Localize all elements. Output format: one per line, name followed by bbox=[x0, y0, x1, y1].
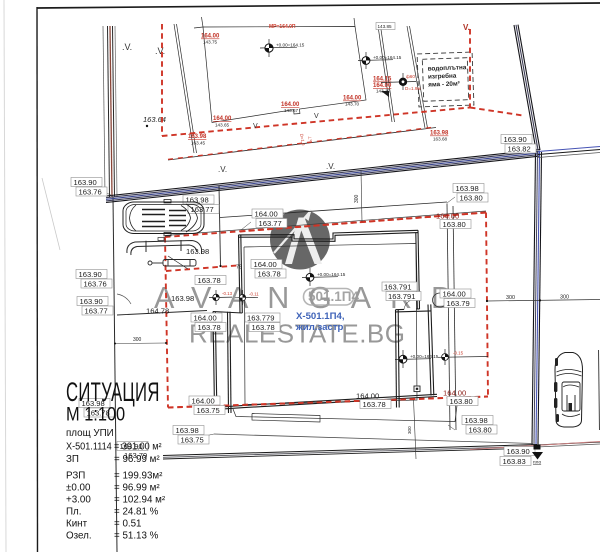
svg-text:163.75: 163.75 bbox=[197, 406, 220, 415]
svg-text:163.78: 163.78 bbox=[252, 323, 275, 332]
svg-text:164.00: 164.00 bbox=[213, 116, 232, 122]
svg-text:300: 300 bbox=[407, 426, 412, 434]
svg-text:.V.: .V. bbox=[218, 165, 227, 174]
svg-text:163.90: 163.90 bbox=[79, 270, 102, 279]
svg-text:163.80: 163.80 bbox=[469, 425, 492, 434]
svg-text:143.70: 143.70 bbox=[345, 102, 359, 107]
svg-text:Кинт: Кинт bbox=[66, 519, 88, 530]
svg-text:163.98: 163.98 bbox=[456, 184, 479, 193]
svg-text:164.78: 164.78 bbox=[146, 307, 169, 316]
svg-text:.V.: .V. bbox=[326, 162, 335, 171]
svg-text:163.83: 163.83 bbox=[503, 457, 526, 466]
svg-text:-0.13: -0.13 bbox=[222, 291, 233, 296]
svg-text:+0.00=164.15: +0.00=164.15 bbox=[317, 272, 346, 277]
svg-text:яма - 20м³: яма - 20м³ bbox=[428, 80, 460, 88]
svg-text:пло: пло bbox=[533, 461, 541, 466]
svg-text:163.90: 163.90 bbox=[504, 135, 527, 144]
svg-text:= 391.00 м²: = 391.00 м² bbox=[114, 441, 162, 452]
svg-text:водоплътна: водоплътна bbox=[428, 64, 467, 72]
svg-text:-0.11: -0.11 bbox=[249, 292, 259, 297]
svg-text:= 51.13 %: = 51.13 % bbox=[114, 531, 159, 542]
svg-text:МР=164.0П: МР=164.0П bbox=[269, 24, 296, 30]
svg-text:163.78: 163.78 bbox=[198, 323, 221, 332]
svg-text:163.80: 163.80 bbox=[460, 193, 483, 202]
svg-text:300: 300 bbox=[506, 295, 515, 301]
svg-text:ф60: ф60 bbox=[406, 74, 415, 79]
svg-text:= 0.51: = 0.51 bbox=[114, 519, 142, 530]
svg-text:X-501.1114: X-501.1114 bbox=[66, 441, 112, 452]
svg-text:164.00: 164.00 bbox=[443, 289, 466, 298]
svg-text:163.98: 163.98 bbox=[186, 247, 209, 256]
svg-text:164.00: 164.00 bbox=[192, 396, 215, 405]
svg-text:163.78: 163.78 bbox=[198, 276, 221, 285]
svg-text:164.00: 164.00 bbox=[255, 209, 278, 218]
svg-text:= 102.94 м²: = 102.94 м² bbox=[114, 495, 166, 506]
svg-text:163.76: 163.76 bbox=[79, 187, 102, 196]
svg-text:163.82: 163.82 bbox=[508, 144, 531, 153]
svg-text:164.15: 164.15 bbox=[373, 77, 392, 83]
svg-text:изгребна: изгребна bbox=[428, 72, 457, 81]
svg-text:Озел.: Озел. bbox=[66, 531, 92, 542]
svg-text:163.98: 163.98 bbox=[171, 294, 194, 303]
svg-text:300: 300 bbox=[560, 295, 569, 301]
svg-text:РЗП: РЗП bbox=[66, 471, 85, 482]
svg-text:163.80: 163.80 bbox=[450, 397, 473, 406]
svg-text:163.779: 163.779 bbox=[247, 313, 274, 322]
svg-text:.V.: .V. bbox=[155, 46, 165, 56]
svg-text:163.90: 163.90 bbox=[507, 447, 530, 456]
svg-text:143.75: 143.75 bbox=[203, 40, 217, 45]
svg-text:143.85: 143.85 bbox=[378, 24, 392, 29]
svg-text:163.75: 163.75 bbox=[181, 435, 204, 444]
svg-text:163.791: 163.791 bbox=[384, 282, 411, 291]
svg-text:163.45: 163.45 bbox=[191, 141, 205, 146]
svg-text:163.77: 163.77 bbox=[259, 219, 282, 228]
svg-text:V.: V. bbox=[463, 23, 470, 32]
svg-text:501.1П4: 501.1П4 bbox=[308, 289, 359, 304]
svg-text:164.00: 164.00 bbox=[194, 313, 217, 322]
svg-text:300: 300 bbox=[133, 337, 142, 343]
svg-text:= 199.93м²: = 199.93м² bbox=[114, 471, 163, 482]
svg-text:М 1:100: М 1:100 bbox=[66, 403, 125, 425]
svg-text:X-501.1П4,: X-501.1П4, bbox=[296, 311, 345, 322]
svg-text:163.791: 163.791 bbox=[388, 292, 415, 301]
svg-text:= 24.81 %: = 24.81 % bbox=[114, 507, 159, 518]
svg-text:D=1.9м: D=1.9м bbox=[405, 86, 421, 91]
svg-text:163.79: 163.79 bbox=[447, 299, 470, 308]
svg-text:V: V bbox=[314, 113, 319, 120]
svg-text:163.90: 163.90 bbox=[80, 297, 103, 306]
svg-text:жил.застр: жил.застр bbox=[295, 322, 343, 333]
svg-text:±0.00: ±0.00 bbox=[66, 483, 91, 494]
svg-text:143.65: 143.65 bbox=[215, 123, 229, 128]
svg-text:+0.00=164.15: +0.00=164.15 bbox=[276, 43, 305, 48]
svg-text:163.90: 163.90 bbox=[74, 178, 97, 187]
svg-text:= 96.99 м²: = 96.99 м² bbox=[114, 454, 160, 465]
svg-text:+3.00: +3.00 bbox=[66, 495, 91, 506]
svg-text:+0.00=164.15: +0.00=164.15 bbox=[410, 354, 439, 359]
svg-text:.V.: .V. bbox=[122, 42, 132, 52]
svg-text:-0.15: -0.15 bbox=[453, 351, 464, 356]
svg-text:143.67: 143.67 bbox=[284, 108, 298, 113]
svg-text:163.80: 163.80 bbox=[443, 220, 466, 229]
svg-text:163.78: 163.78 bbox=[363, 400, 386, 409]
svg-text:+0.00=164.15: +0.00=164.15 bbox=[373, 55, 402, 60]
svg-text:163.98: 163.98 bbox=[188, 134, 207, 140]
svg-text:163.98: 163.98 bbox=[176, 426, 199, 435]
svg-text:163.68: 163.68 bbox=[433, 137, 447, 142]
svg-text:V: V bbox=[253, 123, 258, 130]
svg-text:площ УПИ: площ УПИ bbox=[66, 428, 114, 439]
svg-text:ЗП: ЗП bbox=[66, 454, 79, 465]
svg-text:300: 300 bbox=[354, 194, 360, 203]
svg-text:Пл.: Пл. bbox=[66, 507, 81, 518]
svg-text:163.98: 163.98 bbox=[465, 416, 488, 425]
svg-text:164.00: 164.00 bbox=[254, 260, 277, 269]
svg-text:163.77: 163.77 bbox=[85, 306, 108, 315]
svg-text:= 96.99 м²: = 96.99 м² bbox=[114, 483, 160, 494]
svg-text:163.78: 163.78 bbox=[258, 269, 281, 278]
svg-text:163.76: 163.76 bbox=[84, 279, 107, 288]
